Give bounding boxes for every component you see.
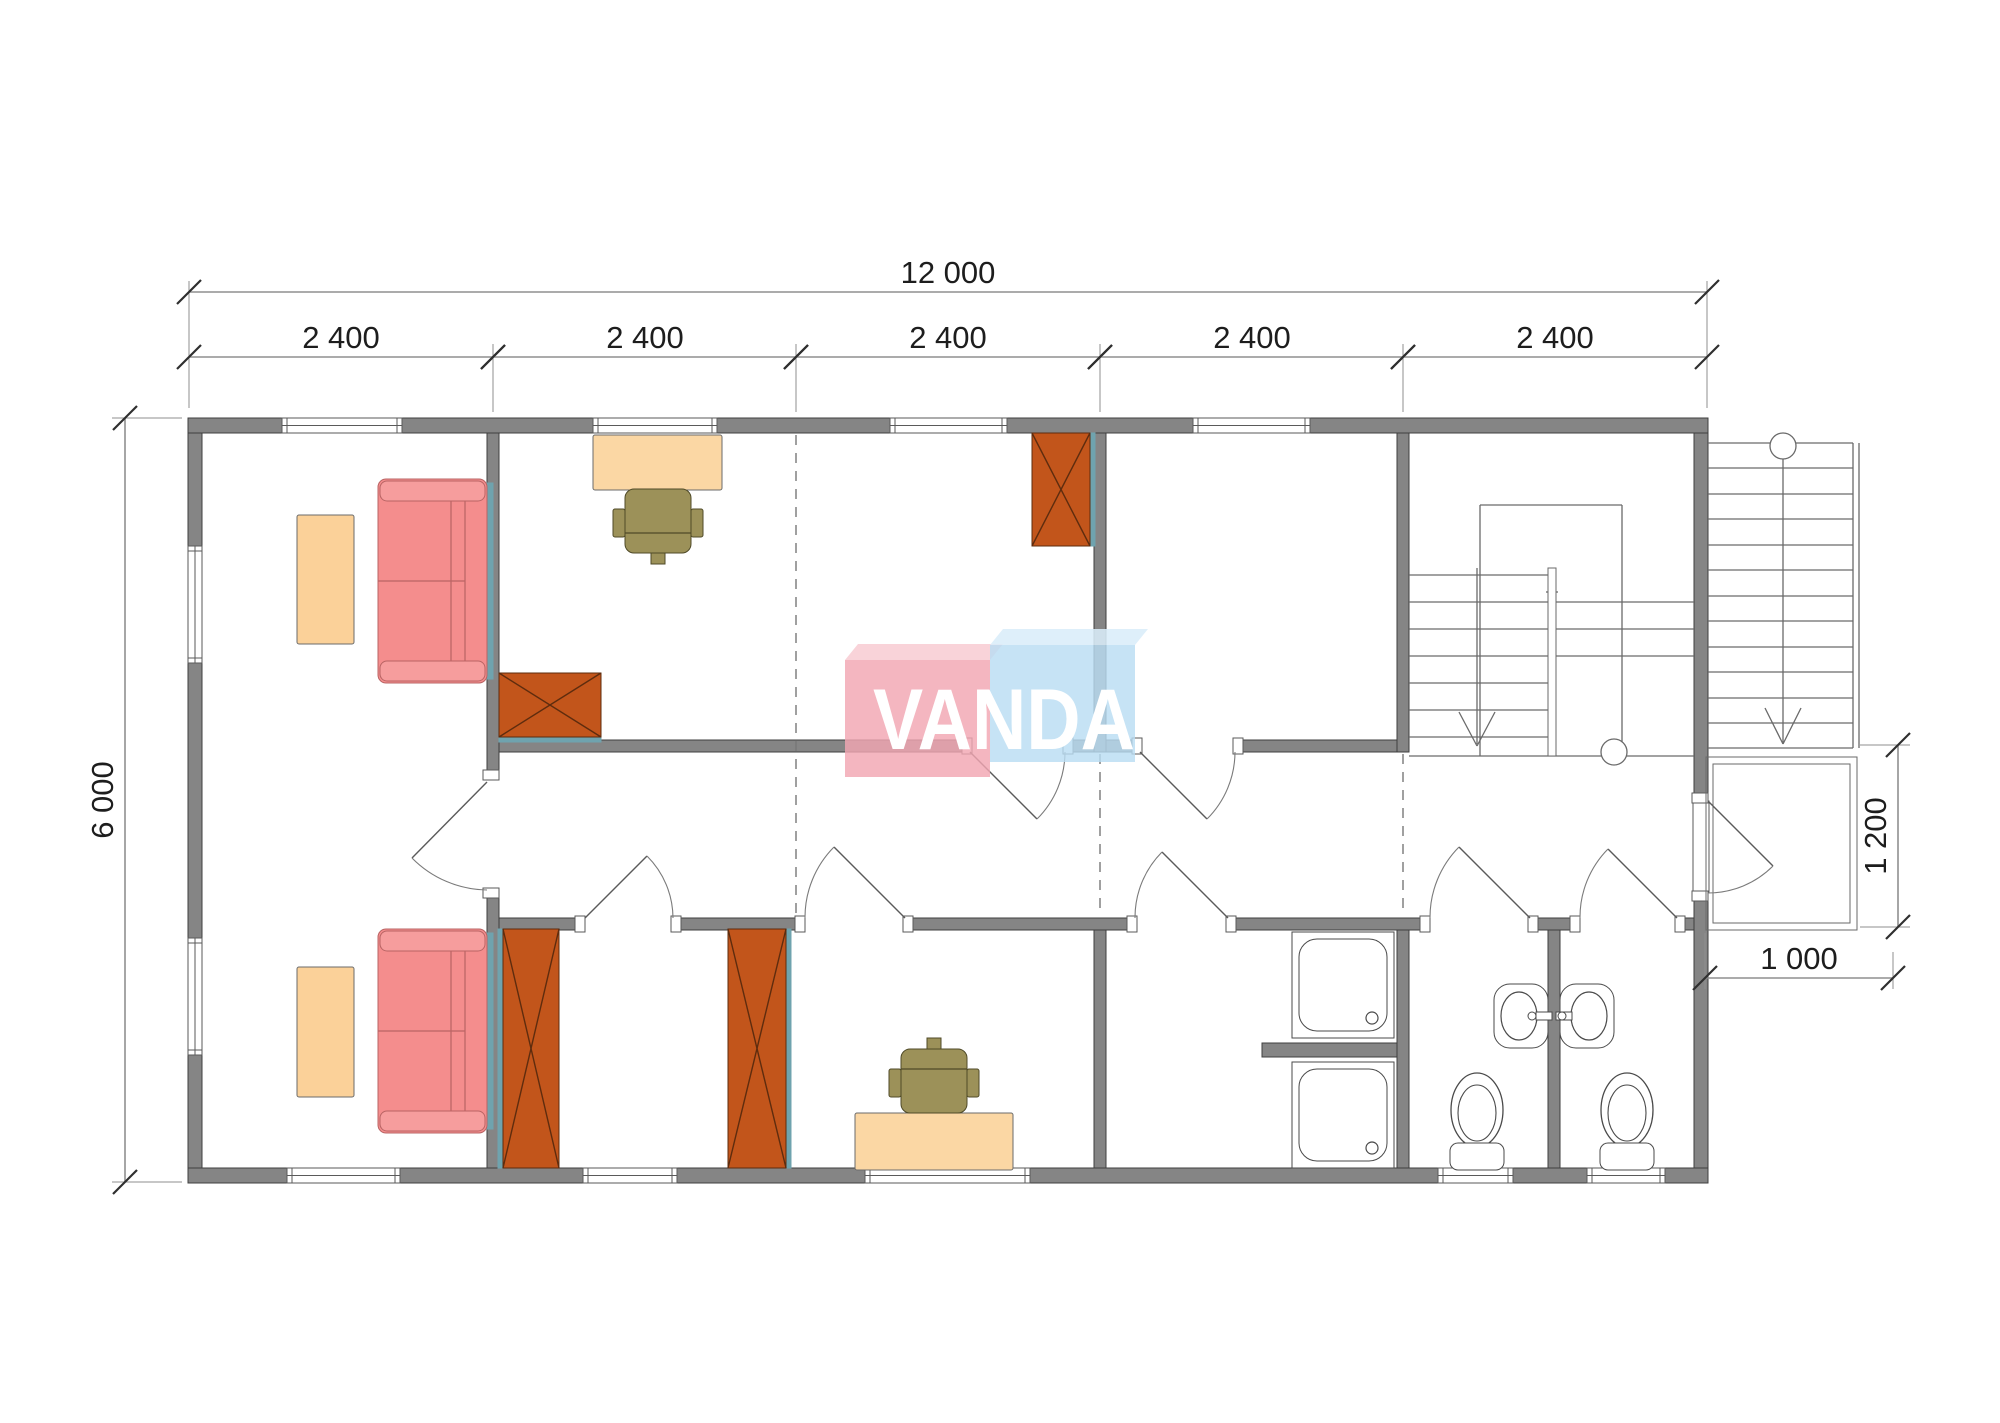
- office-chair-seat: [901, 1049, 967, 1113]
- stair-break-circle: [1601, 739, 1627, 765]
- dimension-label: 2 400: [909, 320, 987, 355]
- door-shower-room-leaf: [1162, 852, 1228, 918]
- exterior-wall: [1694, 433, 1708, 801]
- door-storage-b-leaf: [834, 847, 905, 918]
- office-chair-armrest: [613, 509, 625, 537]
- interior-wall: [905, 918, 1127, 930]
- office-chair-armrest: [691, 509, 703, 537]
- interior-wall: [1228, 918, 1428, 930]
- dimension-label: 2 400: [302, 320, 380, 355]
- dimension-label: 2 400: [1213, 320, 1291, 355]
- dimension-label: 12 000: [901, 255, 996, 290]
- dimension-label: 6 000: [85, 761, 120, 839]
- door-storage-a-leaf: [585, 856, 647, 918]
- stair-break-circle: [1770, 433, 1796, 459]
- stair-line: [1765, 708, 1783, 744]
- sink-faucet-knob: [1528, 1012, 1536, 1020]
- door-entrance-leaf: [1708, 801, 1773, 866]
- door-jamb: [1127, 916, 1137, 932]
- coffee-table: [297, 967, 354, 1097]
- door-wc-right-swing-arc: [1580, 849, 1608, 918]
- interior-wall: [499, 918, 583, 930]
- stair-handrail: [1548, 568, 1556, 756]
- door-jamb: [1420, 916, 1430, 932]
- watermark-text: VANDA: [873, 672, 1135, 768]
- dimension-label: 2 400: [606, 320, 684, 355]
- office-chair-seat: [625, 489, 691, 553]
- office-chair-armrest: [967, 1069, 979, 1097]
- interior-wall: [1262, 1043, 1397, 1057]
- coffee-table: [297, 515, 354, 644]
- door-wc-left-leaf: [1459, 847, 1530, 918]
- exterior-wall: [1694, 893, 1708, 1168]
- dimension-label: 1 200: [1858, 797, 1893, 875]
- office-chair-armrest: [889, 1069, 901, 1097]
- stair-line: [1783, 708, 1801, 744]
- door-jamb: [795, 916, 805, 932]
- door-storage-b-swing-arc: [805, 847, 834, 918]
- sofa-armrest: [380, 931, 485, 951]
- sink-faucet-knob: [1558, 1012, 1566, 1020]
- toilet-bowl: [1451, 1073, 1503, 1147]
- door-storage-a-swing-arc: [647, 856, 673, 918]
- shower-tray: [1292, 1062, 1394, 1168]
- porch-outline: [1713, 764, 1850, 923]
- door-jamb: [1570, 916, 1580, 932]
- sofa-armrest: [380, 661, 485, 681]
- interior-wall: [1397, 433, 1409, 752]
- door-shower-room-swing-arc: [1135, 852, 1162, 918]
- toilet-tank: [1450, 1143, 1504, 1170]
- sofa-armrest: [380, 1111, 485, 1131]
- desk: [593, 435, 722, 490]
- floor-plan-svg: 12 0002 4002 4002 4002 4002 4006 0001 20…: [0, 0, 2000, 1423]
- interior-wall: [1548, 930, 1560, 1168]
- door-jamb: [483, 770, 499, 780]
- door-jamb: [1233, 738, 1243, 754]
- door-wc-left-swing-arc: [1430, 847, 1459, 918]
- toilet-tank: [1600, 1143, 1654, 1170]
- watermark-box-pink-top: [845, 644, 1003, 660]
- door-entrance-swing-arc: [1708, 866, 1773, 893]
- door-jamb: [1693, 801, 1709, 893]
- door-jamb: [671, 916, 681, 932]
- door-jamb: [575, 916, 585, 932]
- desk: [855, 1113, 1013, 1170]
- interior-wall: [1242, 740, 1397, 752]
- toilet-bowl: [1601, 1073, 1653, 1147]
- interior-wall: [1094, 930, 1106, 1168]
- stair-line: [1459, 712, 1477, 746]
- interior-wall: [1397, 930, 1409, 1168]
- exterior-wall: [188, 433, 202, 1168]
- sofa-armrest: [380, 481, 485, 501]
- door-bedroom-leaf: [1140, 752, 1207, 819]
- interior-wall: [673, 918, 805, 930]
- shower-drain: [1366, 1142, 1378, 1154]
- floor-plan-canvas: 12 0002 4002 4002 4002 4002 4006 0001 20…: [0, 0, 2000, 1423]
- watermark-box-blue-top: [990, 629, 1148, 645]
- dimension-label: 2 400: [1516, 320, 1594, 355]
- sink-faucet: [1536, 1012, 1552, 1020]
- shower-drain: [1366, 1012, 1378, 1024]
- door-living-room-swing-arc: [412, 858, 487, 890]
- porch-outline: [1706, 757, 1857, 930]
- dimension-label: 1 000: [1760, 941, 1838, 976]
- door-bedroom-swing-arc: [1207, 752, 1235, 819]
- shower-tray: [1292, 932, 1394, 1038]
- door-living-room-leaf: [412, 782, 487, 858]
- door-wc-right-leaf: [1608, 849, 1677, 918]
